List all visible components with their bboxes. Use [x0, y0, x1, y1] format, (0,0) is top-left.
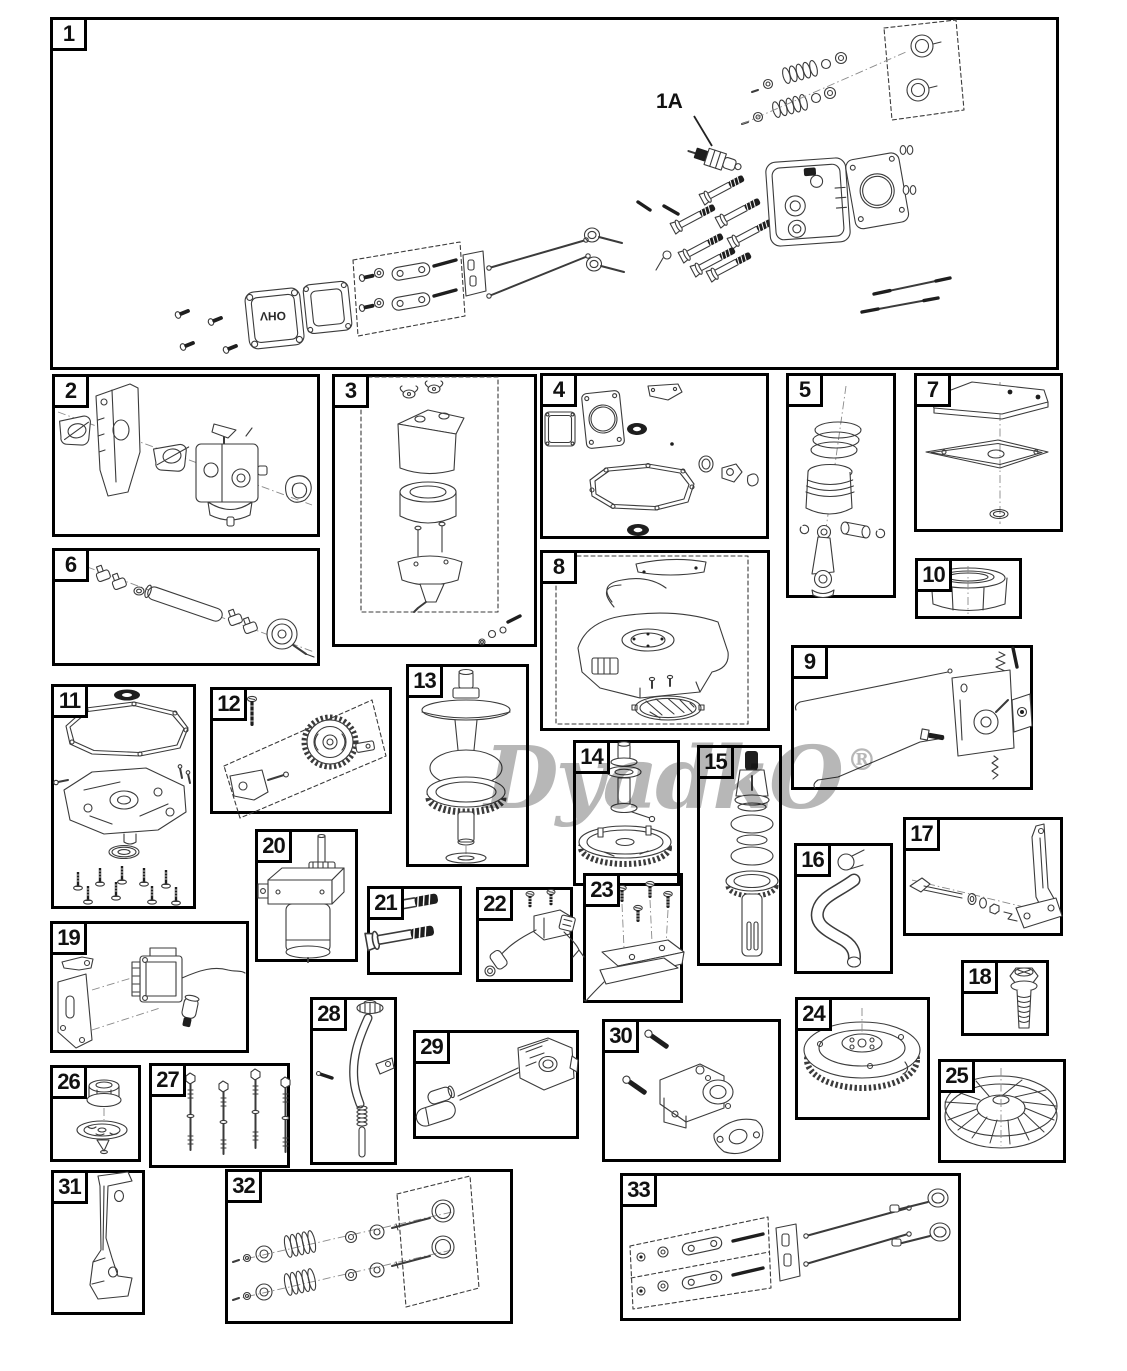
part-box-5: 5: [786, 373, 896, 598]
part-box-2: 2: [52, 374, 320, 537]
part-number-18: 18: [961, 960, 998, 994]
part-box-9: 9: [791, 645, 1033, 790]
part-box-10: 10: [915, 558, 1022, 619]
part-box-23: 23: [583, 873, 683, 1003]
part-box-11: 11: [51, 684, 196, 909]
part-number-4: 4: [540, 373, 577, 407]
part-box-30: 30: [602, 1019, 781, 1162]
part-box-16: 16: [794, 843, 893, 974]
part-number-8: 8: [540, 550, 577, 584]
part-box-22: 22: [476, 887, 573, 982]
part-number-28: 28: [310, 997, 347, 1031]
part-number-12: 12: [210, 687, 247, 721]
part-number-9: 9: [791, 645, 828, 679]
part-number-7: 7: [914, 373, 951, 407]
part-box-17: 17: [903, 817, 1063, 936]
part-box-12: 12: [210, 687, 392, 814]
part-box-29: 29: [413, 1030, 579, 1139]
part-number-24: 24: [795, 997, 832, 1031]
part-number-32: 32: [225, 1169, 262, 1203]
part-number-19: 19: [50, 921, 87, 955]
part-number-20: 20: [255, 829, 292, 863]
part-number-15: 15: [697, 745, 734, 779]
part-box-4: 4: [540, 373, 769, 539]
part-box-18: 18: [961, 960, 1049, 1036]
part-number-13: 13: [406, 664, 443, 698]
part-number-26: 26: [50, 1065, 87, 1099]
part-box-14: 14: [573, 740, 680, 886]
part-box-6: 6: [52, 548, 320, 666]
part-number-22: 22: [476, 887, 513, 921]
part-box-8: 8: [540, 550, 770, 731]
part-box-19: 19: [50, 921, 249, 1053]
part-box-32: 32: [225, 1169, 513, 1324]
part-box-13: 13: [406, 664, 529, 867]
part-box-28: 28: [310, 997, 397, 1165]
part-box-15: 15: [697, 745, 782, 966]
part-number-17: 17: [903, 817, 940, 851]
part-number-23: 23: [583, 873, 620, 907]
part-number-1: 1: [50, 17, 87, 51]
part-number-10: 10: [915, 558, 952, 592]
part-box-31: 31: [51, 1170, 145, 1315]
part-box-27: 27: [149, 1063, 290, 1168]
part-number-3: 3: [332, 374, 369, 408]
part-box-26: 26: [50, 1065, 141, 1162]
part-number-33: 33: [620, 1173, 657, 1207]
part-number-14: 14: [573, 740, 610, 774]
callout-1a: 1A: [656, 90, 683, 114]
engine-parts-diagram-page: 1 2 3 4 5 6 7 8 9 10 11 12 13 14 15 16 1…: [0, 0, 1127, 1371]
part-box-7: 7: [914, 373, 1063, 532]
part-number-25: 25: [938, 1059, 975, 1093]
part-number-5: 5: [786, 373, 823, 407]
part-box-21: 21: [367, 886, 462, 975]
part-number-31: 31: [51, 1170, 88, 1204]
part-box-24: 24: [795, 997, 930, 1120]
part-number-2: 2: [52, 374, 89, 408]
part-box-25: 25: [938, 1059, 1066, 1163]
part-box-3: 3: [332, 374, 537, 647]
part-number-30: 30: [602, 1019, 639, 1053]
part-number-11: 11: [51, 684, 88, 718]
part-box-1: 1: [50, 17, 1059, 370]
part-number-6: 6: [52, 548, 89, 582]
part-box-33: 33: [620, 1173, 961, 1321]
part-number-21: 21: [367, 886, 404, 920]
part-number-29: 29: [413, 1030, 450, 1064]
part-box-20: 20: [255, 829, 358, 962]
part-number-27: 27: [149, 1063, 186, 1097]
part-number-16: 16: [794, 843, 831, 877]
